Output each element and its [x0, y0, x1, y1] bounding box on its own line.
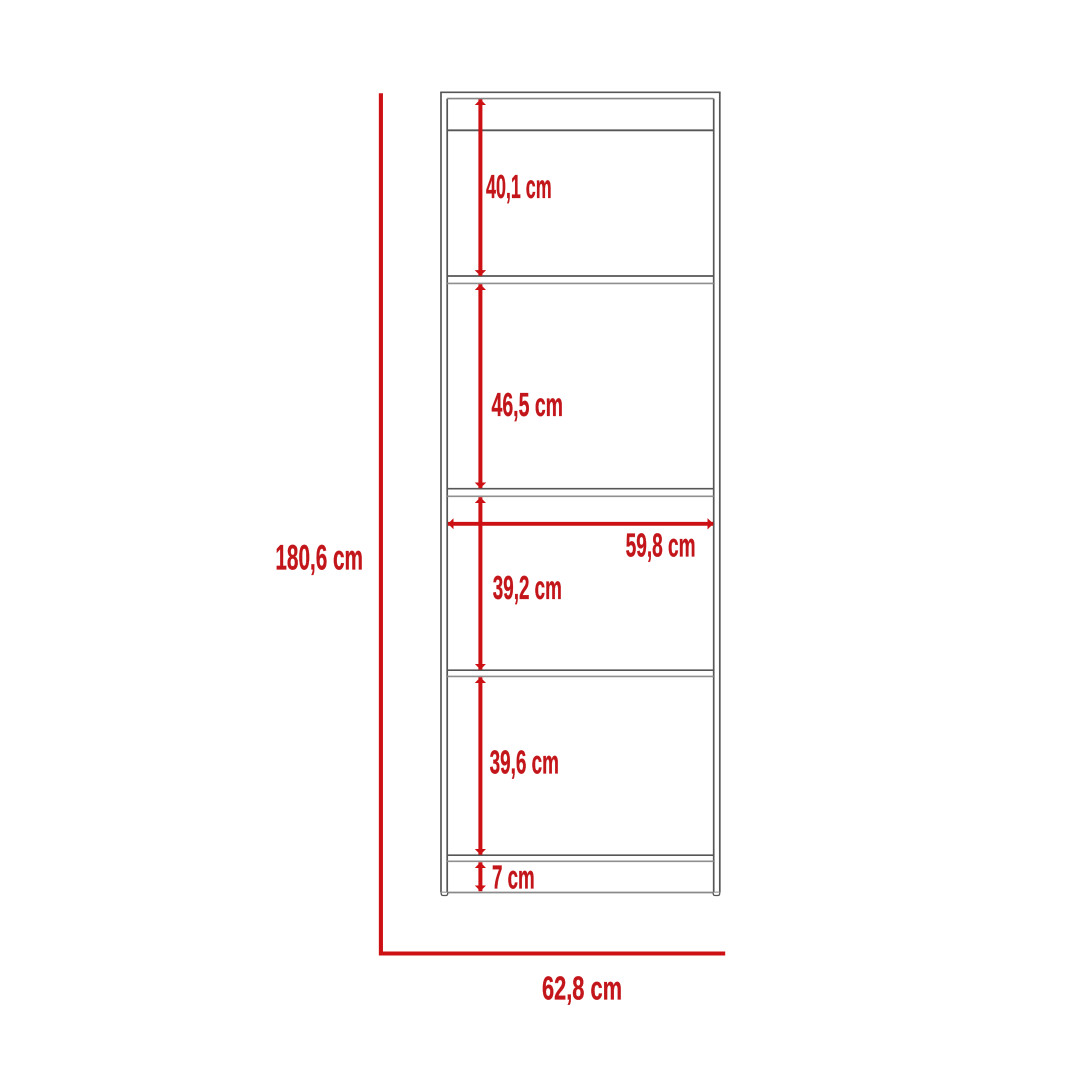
- svg-text:62,8 cm: 62,8 cm: [542, 969, 622, 1006]
- svg-text:180,6 cm: 180,6 cm: [275, 539, 363, 578]
- svg-text:39,2 cm: 39,2 cm: [493, 569, 562, 606]
- svg-text:7 cm: 7 cm: [492, 858, 535, 895]
- svg-text:39,6 cm: 39,6 cm: [490, 743, 559, 780]
- svg-text:46,5 cm: 46,5 cm: [492, 386, 564, 423]
- svg-text:40,1 cm: 40,1 cm: [486, 168, 552, 205]
- svg-text:59,8 cm: 59,8 cm: [626, 527, 696, 564]
